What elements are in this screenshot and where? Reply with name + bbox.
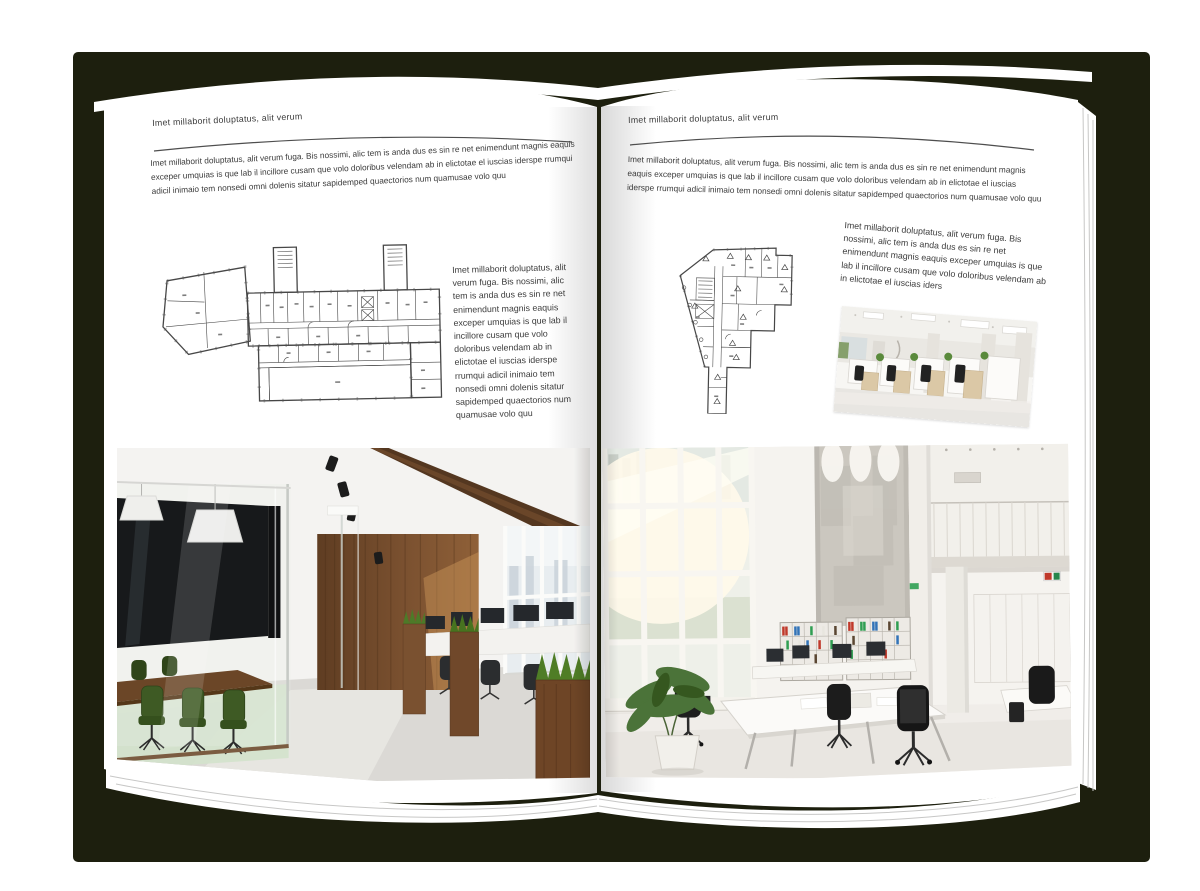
meeting-room: [117, 482, 291, 760]
plan-columns: [681, 286, 709, 359]
left-floor-plan: [156, 237, 448, 415]
plan-outline: [677, 246, 792, 415]
plan-partitions: [164, 248, 441, 403]
right-office-photo: [602, 444, 1071, 781]
plan-triangle-markers: [690, 252, 788, 405]
mezzanine: [908, 444, 1069, 574]
exit-sign: [910, 583, 919, 589]
magazine-mockup-scene: Imet millaborit doluptatus, alit verum I…: [0, 0, 1200, 891]
waste-bin: [1009, 702, 1024, 722]
left-office-photo: [117, 448, 590, 781]
office-photo-thumbnail: [833, 306, 1037, 427]
right-floor-plan: [653, 224, 809, 415]
concrete-wall: [814, 444, 910, 627]
plant-pot: [655, 735, 699, 769]
plan-room-labels: [182, 289, 429, 394]
left-page-side-paragraph: Imet millaborit doluptatus, alit verum f…: [452, 261, 580, 423]
plan-window-ticks: [162, 263, 442, 403]
